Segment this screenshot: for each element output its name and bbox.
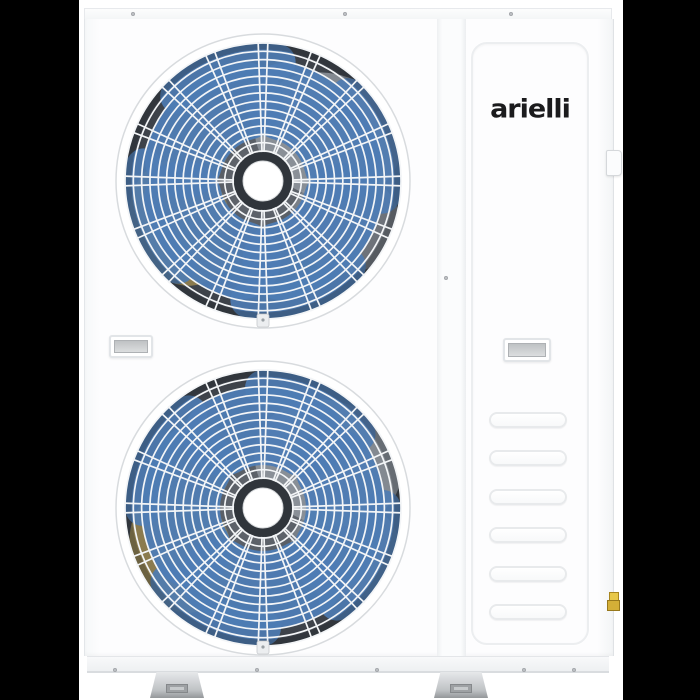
screw [509, 12, 513, 16]
screw [522, 668, 526, 672]
panel-seam-strip [437, 19, 466, 656]
pillarbox-right [623, 0, 700, 700]
mounting-foot-left [150, 672, 204, 698]
vent-slot [489, 604, 567, 620]
screw [343, 12, 347, 16]
handle-recess-left [109, 335, 153, 358]
valve-body [607, 600, 620, 611]
handle-recess-left-inner [114, 340, 148, 353]
screw [255, 668, 259, 672]
unit-front: arielli [84, 19, 614, 656]
screw [375, 668, 379, 672]
foot-bolt-slot [166, 684, 188, 693]
fan-grille-bottom [113, 358, 413, 658]
handle-recess-right-inner [508, 343, 546, 357]
mounting-foot-right [434, 672, 488, 698]
brand-logo: arielli [473, 95, 587, 124]
vent-slot [489, 489, 567, 505]
product-photo: arielli [0, 0, 700, 700]
vent-slot [489, 450, 567, 466]
pillarbox-left [0, 0, 79, 700]
handle-recess-right [503, 338, 551, 362]
screw [113, 668, 117, 672]
unit-base-band [87, 656, 609, 673]
vent-slot [489, 566, 567, 582]
screw [131, 12, 135, 16]
screw [572, 668, 576, 672]
screw [444, 276, 448, 280]
refrigerant-valve [607, 592, 620, 610]
vent-slot [489, 527, 567, 543]
fan-grille-svg [113, 358, 413, 658]
side-service-panel: arielli [471, 42, 589, 645]
side-latch [606, 150, 622, 176]
vent-slot [489, 412, 567, 428]
foot-bolt-slot [450, 684, 472, 693]
fan-grille-top [113, 31, 413, 331]
fan-grille-svg [113, 31, 413, 331]
